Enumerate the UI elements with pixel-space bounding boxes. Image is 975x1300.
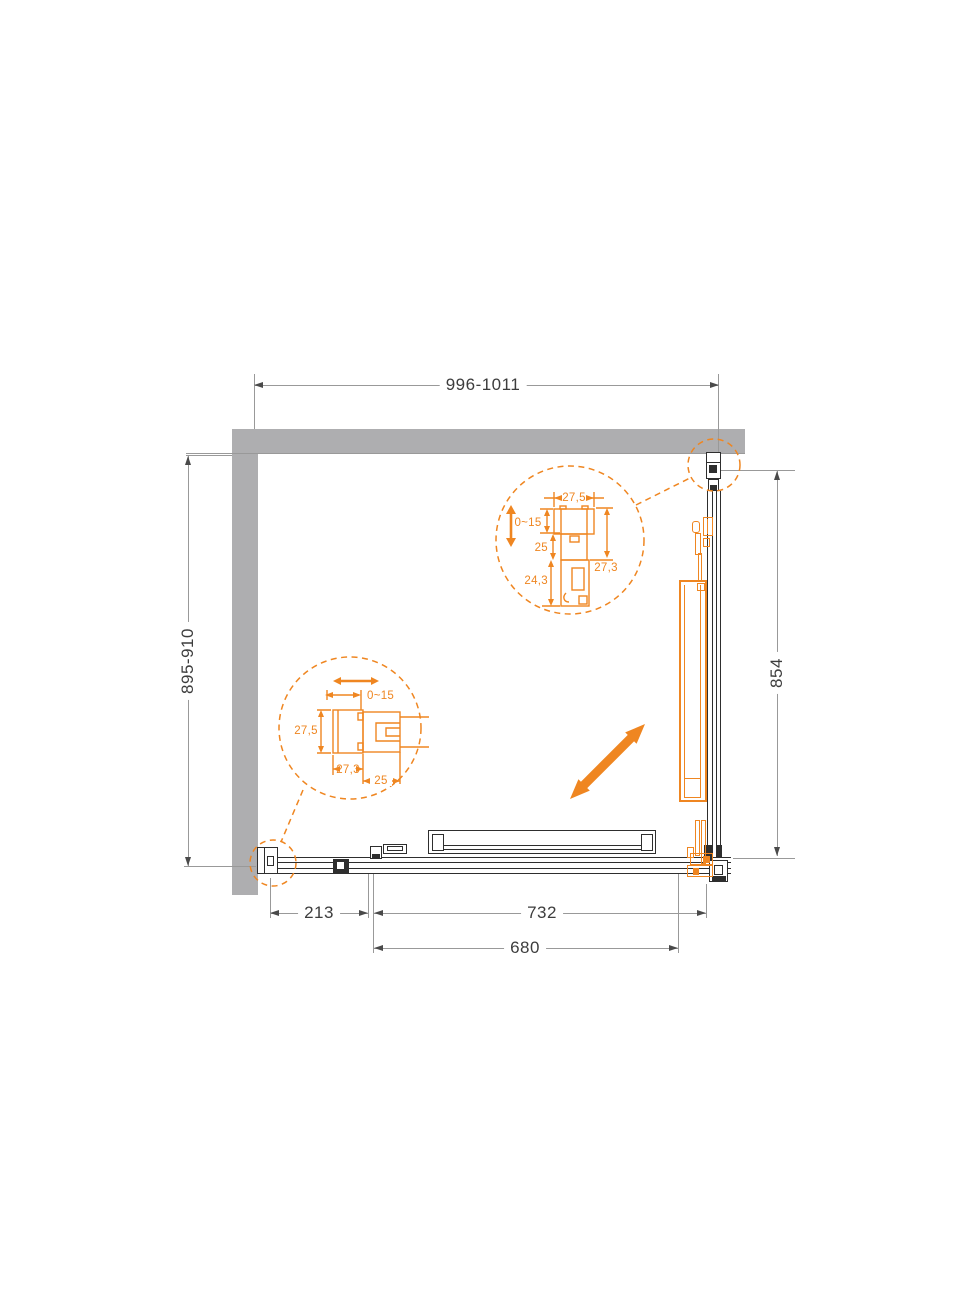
extension-line	[184, 866, 256, 867]
extension-line	[706, 884, 707, 918]
dim-arrow	[774, 847, 780, 856]
dim-arrow	[270, 910, 279, 916]
dim-label-top-width: 996-1011	[440, 375, 527, 395]
dim-arrow	[374, 910, 383, 916]
detail-top-dim-mid: 25	[535, 542, 548, 554]
detail-top-dim-lower: 24,3	[524, 575, 548, 587]
dim-label-fixed-panel: 213	[298, 903, 340, 923]
detail-top-dim-width: 27,5	[562, 492, 586, 504]
shower-enclosure-technical-drawing: 996-1011 895-910 854 213 732 680	[0, 0, 975, 1300]
dim-arrow	[359, 910, 368, 916]
detail-left-dim-width: 27,3	[336, 764, 360, 776]
extension-line	[186, 455, 232, 456]
detail-top-dim-adjust: 0~15	[514, 517, 541, 529]
dim-arrow	[669, 945, 678, 951]
extension-line	[733, 858, 795, 859]
door-roller-right	[703, 517, 713, 536]
dim-label-door: 680	[504, 938, 546, 958]
detail-circle-left: 0~15 27,5 27,3 25	[279, 657, 429, 799]
detail-circle-top: 27,5 0~15 25 24,3 27,3	[496, 466, 644, 614]
detail-left-dim-depth: 25	[374, 775, 387, 787]
leader-line-left	[281, 790, 303, 842]
extension-line	[721, 470, 795, 471]
dim-label-left-depth: 895-910	[178, 622, 198, 700]
leader-line-top	[636, 477, 692, 505]
dim-arrow	[185, 456, 191, 465]
dim-label-right-side: 854	[767, 652, 787, 694]
extension-line	[368, 874, 369, 918]
dim-arrow	[710, 382, 719, 388]
detail-top-dim-side: 27,3	[594, 562, 618, 574]
dim-arrow	[185, 857, 191, 866]
wall-top-inner-edge	[186, 453, 745, 454]
detail-left-dim-adjust: 0~15	[367, 690, 394, 702]
dim-arrow	[254, 382, 263, 388]
dim-arrow	[774, 471, 780, 480]
dim-arrow	[374, 945, 383, 951]
wall-top	[232, 429, 745, 453]
slide-direction-arrow-icon	[570, 724, 645, 799]
wall-left	[232, 429, 258, 895]
detail-overlay: 27,5 0~15 25 24,3 27,3	[0, 0, 975, 1300]
dim-arrow	[697, 910, 706, 916]
dim-label-opening: 732	[521, 903, 563, 923]
detail-left-dim-height: 27,5	[294, 725, 318, 737]
